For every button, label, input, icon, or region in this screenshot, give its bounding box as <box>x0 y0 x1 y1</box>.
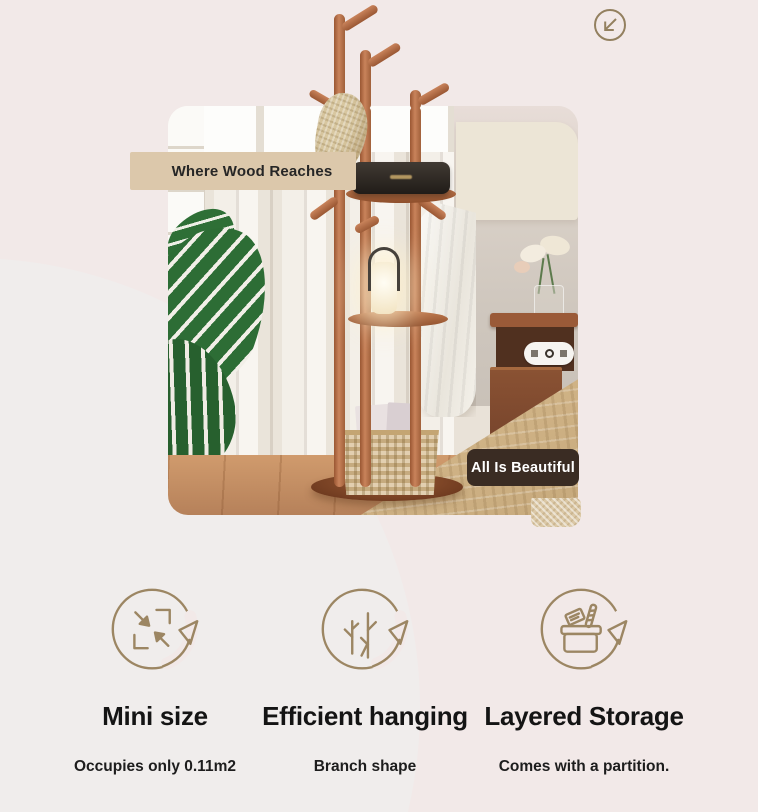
page: Where Wood Reaches All Is Beautiful <box>0 0 758 812</box>
shrink-arrows-icon <box>102 585 208 681</box>
rack-branch <box>367 42 402 69</box>
flower-bud <box>514 261 530 273</box>
feature-card-mini-size: Mini size Occupies only 0.11m2 <box>50 585 260 776</box>
lantern-lamp-handle <box>368 247 400 291</box>
clock-dial <box>545 349 554 358</box>
feature-card-layered-storage: Layered Storage Comes with a partition. <box>470 585 698 776</box>
clock-right-square <box>560 350 567 357</box>
nightstand-top <box>490 313 578 327</box>
branches-icon <box>312 585 418 681</box>
rack-branch <box>417 82 451 107</box>
clock-device <box>524 342 574 365</box>
feature-title: Layered Storage <box>484 701 683 732</box>
speaker-logo <box>390 175 412 179</box>
feature-list: Mini size Occupies only 0.11m2 <box>0 585 758 776</box>
feature-subtitle: Occupies only 0.11m2 <box>74 758 236 776</box>
speaker <box>352 162 450 194</box>
feature-title: Mini size <box>102 701 208 732</box>
bath-towel <box>418 202 476 417</box>
feature-card-efficient-hanging: Efficient hanging Branch shape <box>260 585 470 776</box>
arrow-down-left-icon <box>592 7 628 43</box>
top-caption-text: Where Wood Reaches <box>172 163 333 180</box>
bed-headboard <box>456 122 578 220</box>
blanket-overflow <box>531 498 581 527</box>
feature-subtitle: Comes with a partition. <box>499 758 670 776</box>
storage-basket <box>338 430 442 495</box>
feature-title: Efficient hanging <box>262 701 468 732</box>
clock-left-square <box>531 350 538 357</box>
bottom-caption-text: All Is Beautiful <box>471 460 575 476</box>
rack-branch <box>341 3 380 32</box>
top-caption-banner: Where Wood Reaches <box>130 152 356 190</box>
collapse-button[interactable] <box>592 7 628 43</box>
feature-subtitle: Branch shape <box>314 758 417 776</box>
storage-box-icon <box>531 585 637 681</box>
bottom-caption-label: All Is Beautiful <box>467 449 579 486</box>
rack-shelf-lower <box>348 311 448 327</box>
